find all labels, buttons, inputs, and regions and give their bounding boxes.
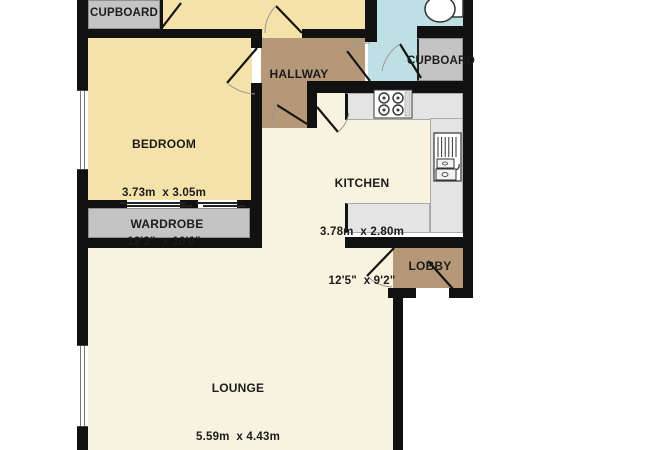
door-arc <box>227 83 255 94</box>
bedroom-door <box>227 48 257 83</box>
door-arc <box>347 43 370 51</box>
lobby-label: LOBBY <box>409 260 452 273</box>
sink <box>434 133 461 181</box>
kitchen-name: KITCHEN <box>320 177 404 190</box>
kitchen-label: KITCHEN 3.78m x 2.80m 12'5" x 9'2" <box>320 141 404 324</box>
hallway-label: HALLWAY <box>270 68 329 81</box>
cupboard-top-left-door <box>161 3 181 29</box>
stove <box>374 90 412 118</box>
bedroom-dim-metric: 3.73m x 3.05m <box>122 187 206 200</box>
door-arc <box>272 105 277 124</box>
cupboard-top-left-label: CUPBOARD <box>90 7 158 20</box>
cupboard-right-label: CUPBOARD <box>407 55 475 68</box>
bedroom-label: BEDROOM 3.73m x 3.05m 12'3" x 10'0" <box>122 102 206 285</box>
lounge-name: LOUNGE <box>196 382 280 395</box>
kitchen-dim-imperial: 12'5" x 9'2" <box>320 275 404 288</box>
bedroom-dim-imperial: 12'3" x 10'0" <box>122 236 206 249</box>
floor-plan: CUPBOARD BEDROOM 3.73m x 3.05m 12'3" x 1… <box>0 0 650 450</box>
door-arc <box>265 6 276 33</box>
door-arc <box>382 44 400 71</box>
door-arc <box>338 113 349 132</box>
hallway-lounge-door <box>277 105 307 124</box>
top-room-door <box>276 6 302 33</box>
kitchen-dim-metric: 3.78m x 2.80m <box>320 226 404 239</box>
lounge-dim-metric: 5.59m x 4.43m <box>196 431 280 444</box>
wardrobe-label: WARDROBE <box>131 218 204 231</box>
bathroom-door <box>347 51 370 81</box>
toilet <box>425 0 463 22</box>
lounge-label: LOUNGE 5.59m x 4.43m 18'4" x 14'6" <box>196 346 280 450</box>
bedroom-name: BEDROOM <box>122 138 206 151</box>
kitchen-door <box>317 107 338 132</box>
